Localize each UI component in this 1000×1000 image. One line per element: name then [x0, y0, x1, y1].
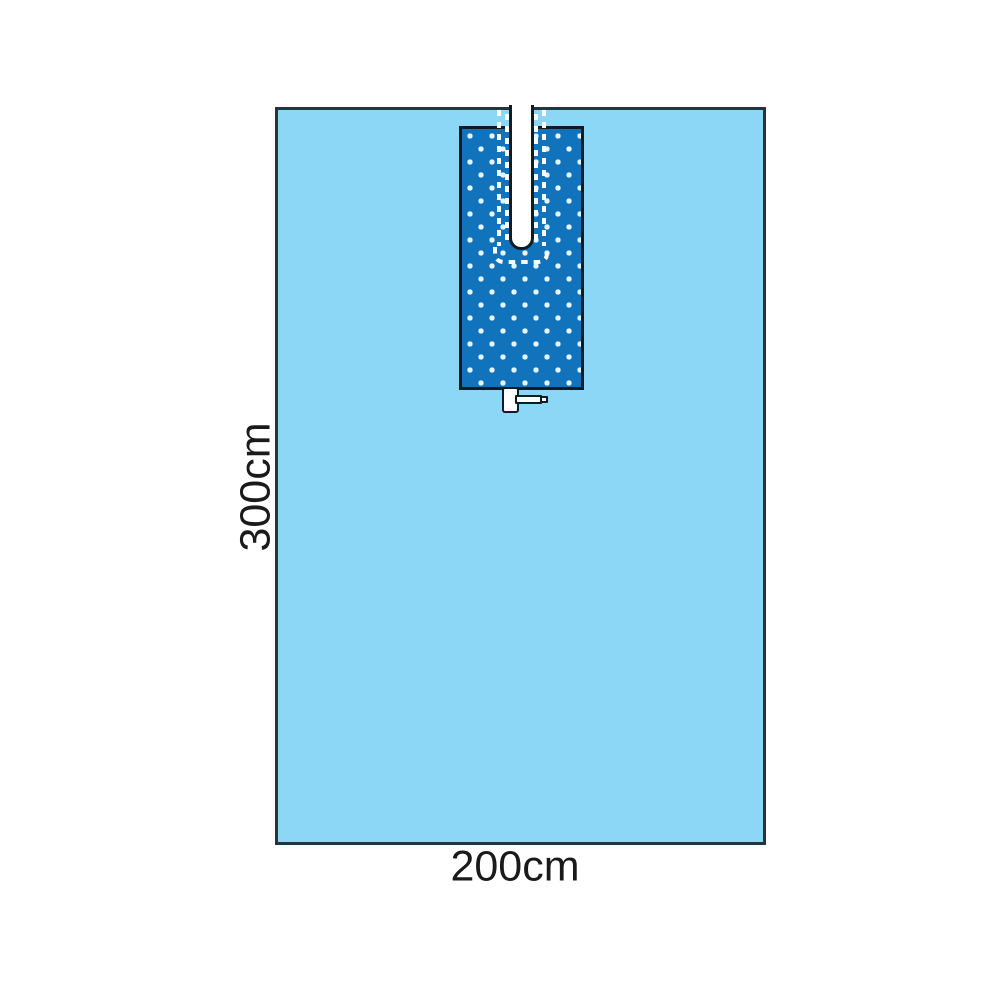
- adhesive-dash-line-right-inner: [534, 114, 538, 244]
- adhesive-dash-line-left-inner: [505, 114, 509, 244]
- adhesive-dash-line-left-outer: [497, 110, 501, 246]
- tube-holder-arm: [515, 395, 542, 404]
- height-dimension-label: 300cm: [232, 422, 281, 551]
- adhesive-dash-bracket-icon: [492, 246, 550, 268]
- diagram-canvas: 300cm 200cm: [0, 0, 1000, 1000]
- width-dimension-label: 200cm: [450, 843, 579, 892]
- tube-holder-tip: [540, 396, 548, 403]
- adhesive-dash-line-right-outer: [542, 110, 546, 246]
- fenestration-slit: [509, 105, 534, 250]
